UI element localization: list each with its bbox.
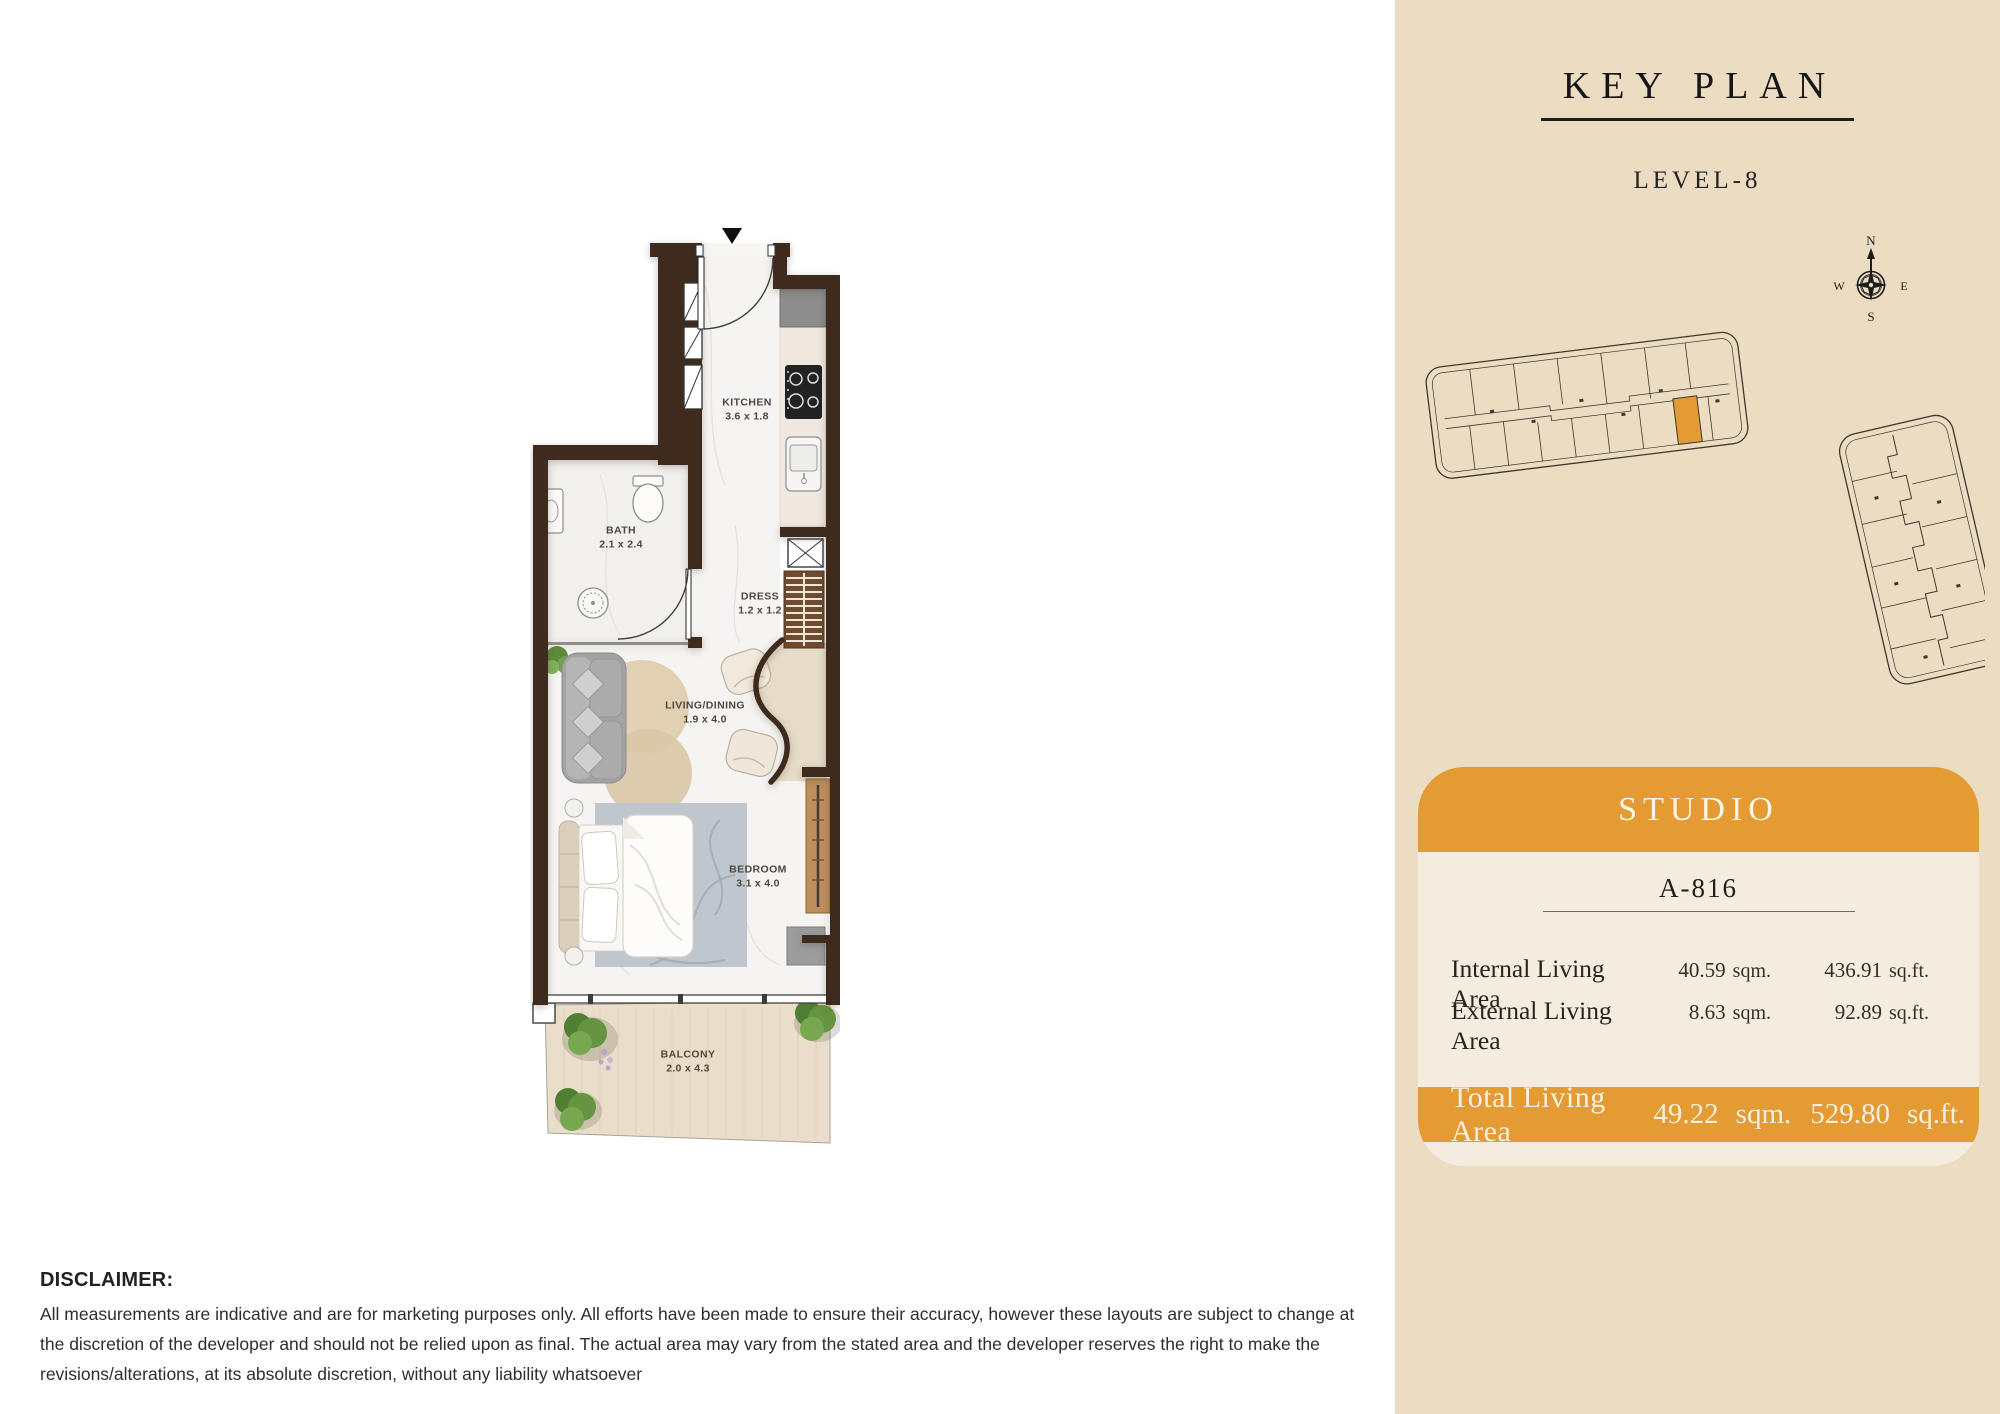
room-dims: 2.1 x 2.4 [599,538,643,552]
area-sqft: 92.89 sq.ft. [1771,1000,1929,1025]
compass-north-label: N [1866,233,1876,248]
room-name: BATH [599,525,643,539]
total-sqm-value: 49.22 [1653,1098,1718,1131]
disclaimer-body: All measurements are indicative and are … [40,1299,1370,1389]
unit-info-card: STUDIO A-816 Internal Living Area 40.59 … [1418,767,1979,1166]
bed [559,815,693,957]
room-label-kitchen: KITCHEN 3.6 x 1.8 [722,397,771,424]
disclaimer: DISCLAIMER: All measurements are indicat… [40,1269,1370,1389]
total-sqft-unit: sq.ft. [1907,1098,1965,1131]
key-plan-level: LEVEL-8 [1395,167,2000,195]
sqm-unit: sqm. [1733,1002,1771,1025]
internal-area-row: Internal Living Area 40.59 sqm. 436.91 s… [1418,954,1979,996]
balcony-window [548,994,826,1004]
wardrobe [806,779,830,913]
kitchen-sink [786,437,821,491]
unit-type-header: STUDIO [1418,767,1979,852]
balcony-column [533,1003,555,1023]
external-area-row: External Living Area 8.63 sqm. 92.89 sq.… [1418,996,1979,1038]
compass-east-label: E [1900,279,1907,293]
keyplan-building-a [1420,322,1775,492]
unit-number-divider [1543,911,1855,912]
sqm-unit: sqm. [1733,960,1771,983]
room-label-bedroom: BEDROOM 3.1 x 4.0 [729,864,787,891]
toilet [633,476,663,522]
key-plan-panel: KEY PLAN LEVEL-8 N W E S [1395,0,2000,1414]
compass-west-label: W [1833,279,1845,293]
room-label-dress: DRESS 1.2 x 1.2 [738,591,782,618]
room-label-living-dining: LIVING/DINING 1.9 x 4.0 [665,700,745,727]
area-rows: Internal Living Area 40.59 sqm. 436.91 s… [1418,954,1979,1038]
disclaimer-heading: DISCLAIMER: [40,1269,1370,1292]
compass-icon: N W E S [1828,228,1918,328]
shaft-box [788,539,823,567]
area-label: External Living Area [1451,996,1649,1056]
floor-plan-page: KITCHEN 3.6 x 1.8 BATH 2.1 x 2.4 DRESS 1… [0,0,2000,1414]
unit-number: A-816 [1418,873,1979,904]
stove [785,365,822,419]
sofa [562,653,626,783]
room-label-bath: BATH 2.1 x 2.4 [599,525,643,552]
ac-unit [787,927,825,965]
room-dims: 3.1 x 4.0 [729,877,787,891]
sqm-value: 40.59 [1678,958,1725,983]
key-plan-title-wrap: KEY PLAN [1395,64,2000,121]
area-sqft: 436.91 sq.ft. [1771,958,1929,983]
total-label: Total Living Area [1451,1081,1653,1149]
room-dims: 2.0 x 4.3 [661,1062,716,1076]
room-label-balcony: BALCONY 2.0 x 4.3 [661,1049,716,1076]
total-sqm-unit: sqm. [1736,1098,1792,1131]
area-sqm: 8.63 sqm. [1649,1000,1771,1025]
side-table-1 [565,799,583,817]
key-plan-title: KEY PLAN [1541,64,1854,121]
floor-plan-drawing [530,225,840,1150]
room-name: KITCHEN [722,397,771,411]
side-table-2 [565,947,583,965]
room-dims: 1.2 x 1.2 [738,604,782,618]
room-dims: 1.9 x 4.0 [665,713,745,727]
area-sqm: 40.59 sqm. [1649,958,1771,983]
total-living-area-bar: Total Living Area 49.22 sqm. 529.80 sq.f… [1418,1087,1979,1142]
compass-south-label: S [1867,309,1874,324]
fridge [780,289,826,327]
shower-drain [578,588,608,618]
unit-type-label: STUDIO [1618,791,1779,829]
sqft-unit: sq.ft. [1889,1002,1929,1025]
highlighted-unit [1673,396,1702,445]
sqft-value: 436.91 [1824,958,1882,983]
room-name: BEDROOM [729,864,787,878]
room-dims: 3.6 x 1.8 [722,410,771,424]
sqft-unit: sq.ft. [1889,960,1929,983]
room-name: DRESS [738,591,782,605]
entry-arrow-icon [722,228,742,244]
balcony-plant-3 [794,1000,840,1042]
room-name: BALCONY [661,1049,716,1063]
total-sqft-value: 529.80 [1810,1098,1890,1131]
dress-closet [784,571,824,648]
keyplan-building-b [1810,398,1985,698]
room-name: LIVING/DINING [665,700,745,714]
sqm-value: 8.63 [1689,1000,1726,1025]
sqft-value: 92.89 [1835,1000,1882,1025]
